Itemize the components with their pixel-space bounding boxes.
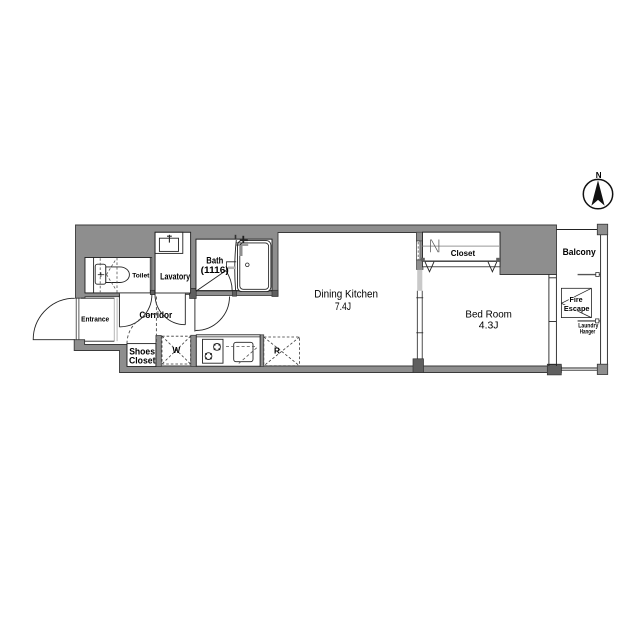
svg-text:Lavatory: Lavatory: [160, 271, 191, 282]
svg-text:7.4J: 7.4J: [335, 301, 351, 313]
svg-text:Dining Kitchen: Dining Kitchen: [314, 289, 378, 301]
svg-text:Escape: Escape: [564, 304, 590, 313]
svg-text:Toilet: Toilet: [132, 273, 150, 280]
svg-text:Entrance: Entrance: [81, 315, 109, 324]
svg-text:Fire: Fire: [570, 295, 583, 304]
svg-text:Closet: Closet: [451, 248, 475, 258]
svg-text:N: N: [596, 171, 602, 180]
svg-text:R: R: [274, 347, 280, 356]
svg-text:W: W: [173, 346, 181, 355]
svg-text:(1116): (1116): [201, 265, 229, 275]
svg-text:Bed Room: Bed Room: [465, 309, 512, 320]
svg-text:Hanger: Hanger: [580, 330, 596, 336]
svg-text:4.3J: 4.3J: [479, 321, 499, 332]
svg-text:Closet: Closet: [129, 355, 156, 365]
svg-text:Balcony: Balcony: [563, 246, 597, 257]
